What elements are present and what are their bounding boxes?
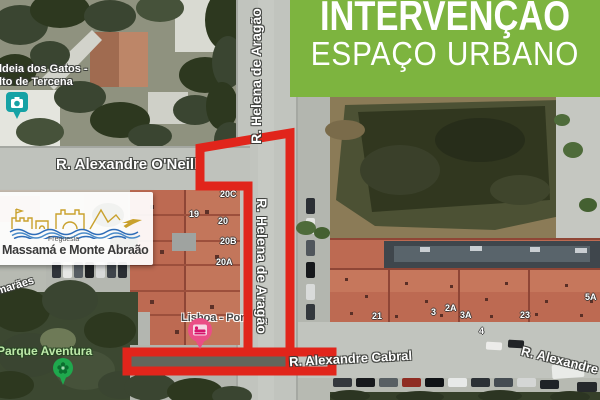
logo-text-org-name: Massamá e Monte Abraão [2, 243, 148, 257]
street-label-aldeia-line1: Aldeia dos Gatos - [0, 63, 88, 75]
park-label-parque-aventura: Parque Aventura [0, 344, 92, 358]
photo-spot-marker [4, 90, 30, 122]
intervention-poster: R. Alexandre O'Neill Lisboa - Portugal 2… [0, 0, 600, 400]
title-panel: INTERVENÇÃO ESPAÇO URBANO [290, 0, 600, 97]
street-label-helena-top: R. Helena de Aragão [248, 1, 264, 151]
street-label-aldeia-line2: Alto de Tercena [0, 76, 73, 88]
hotel-marker [185, 316, 215, 350]
park-marker [51, 357, 75, 387]
logo-text-freguesia: Freguesia [48, 236, 79, 243]
freguesia-logo-art [4, 193, 154, 239]
street-label-helena-mid: R. Helena de Aragão [254, 191, 270, 341]
freguesia-logo-box: Freguesia Massamá e Monte Abraão [0, 192, 153, 265]
title-line-2: ESPAÇO URBANO [306, 36, 585, 72]
title-line-1: INTERVENÇÃO [318, 0, 572, 38]
